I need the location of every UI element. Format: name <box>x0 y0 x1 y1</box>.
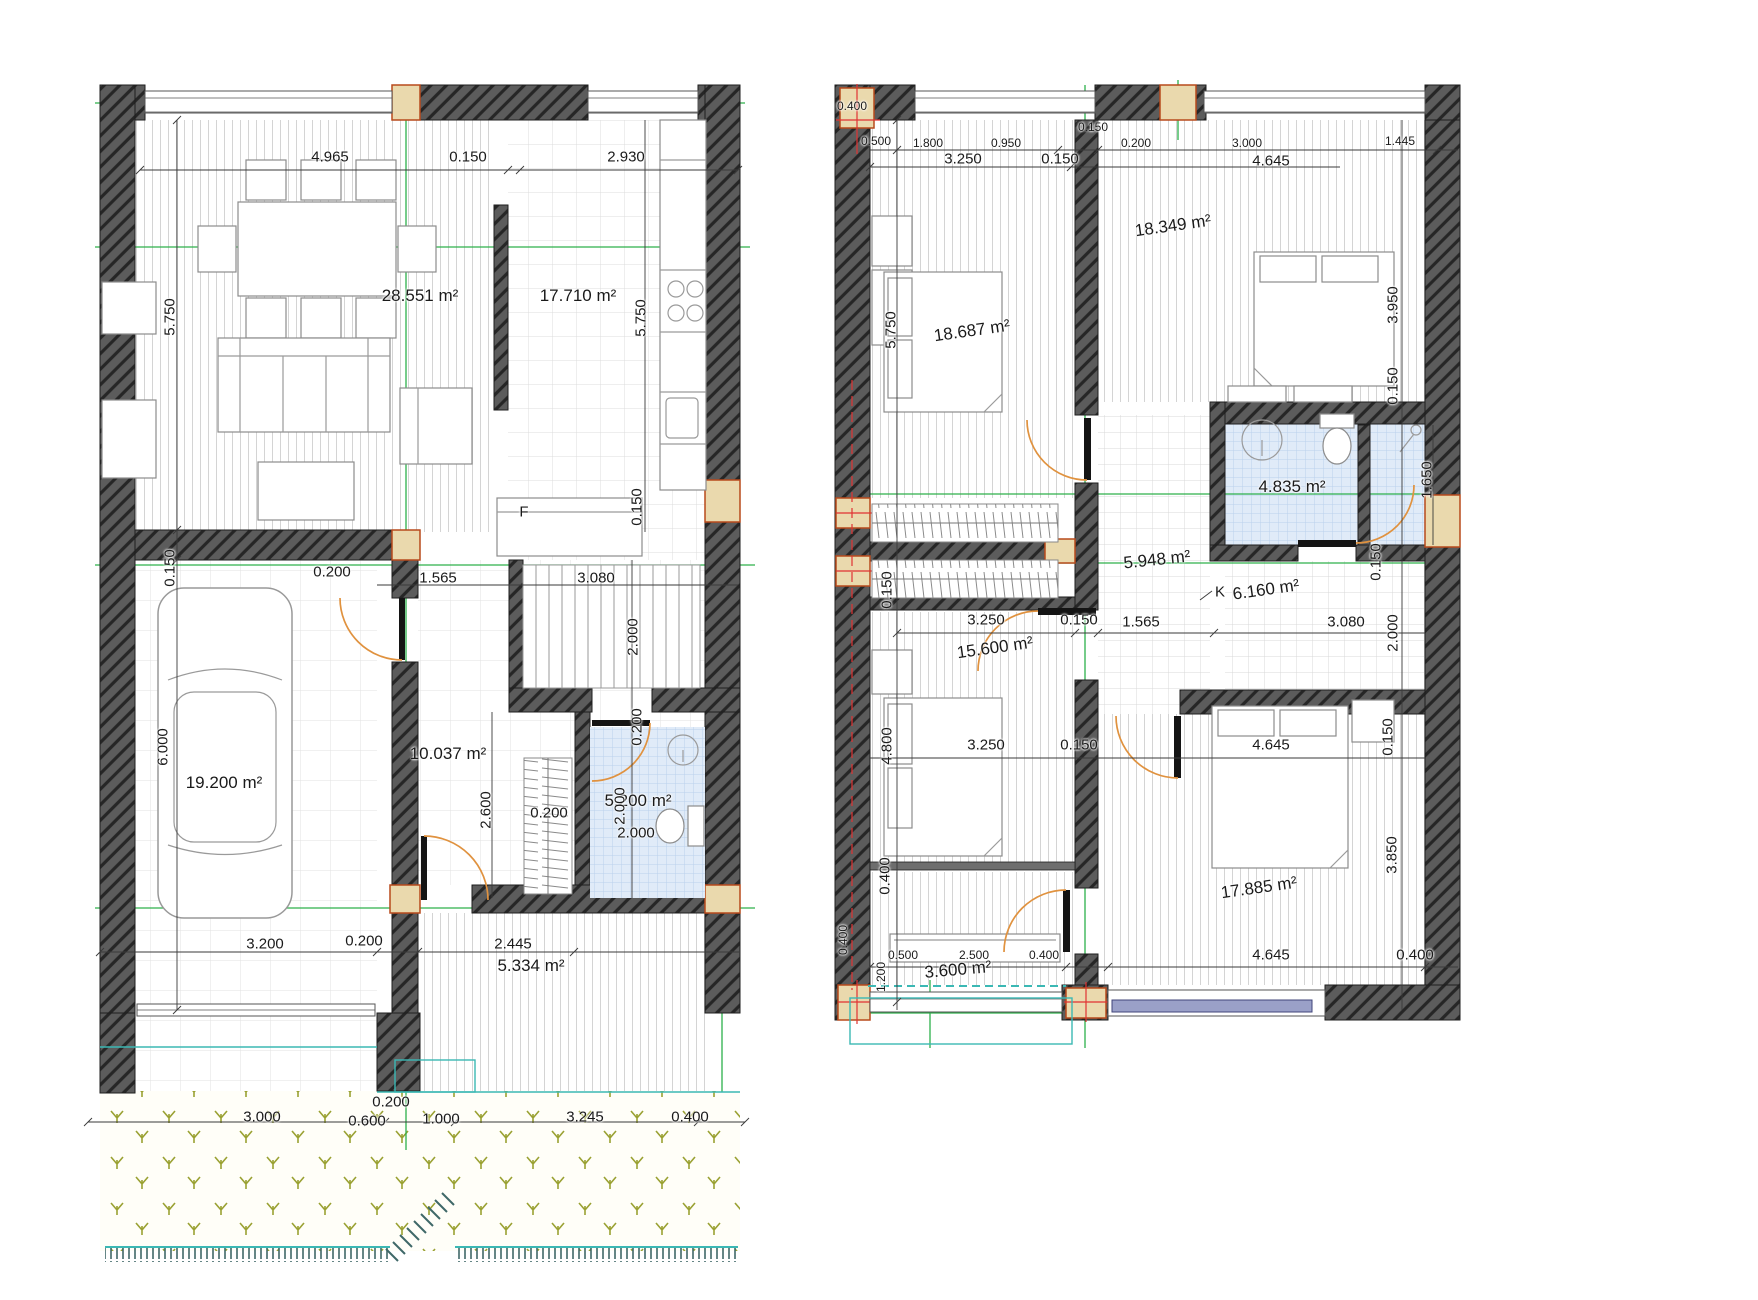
staircase <box>523 565 700 688</box>
toilet-icon <box>1320 414 1354 428</box>
sofa <box>218 338 390 432</box>
kitchen-counter <box>660 120 706 490</box>
fence-hatch <box>105 1248 390 1262</box>
dining-table <box>238 202 396 296</box>
ground-floor-plan <box>84 85 755 1262</box>
sliding-door <box>1112 1000 1312 1012</box>
car <box>158 588 292 918</box>
toilet-icon <box>688 806 704 846</box>
fence-hatch <box>455 1248 738 1262</box>
ground-floor-bathroom <box>590 727 705 898</box>
counter <box>890 934 1060 962</box>
armchair <box>400 388 472 464</box>
hall-closet <box>524 758 572 894</box>
fridge-counter <box>497 498 642 556</box>
floor-plan-canvas: 4.9650.1502.93028.551 m²17.710 m²5.7505.… <box>0 0 1758 1300</box>
floor-plan-drawing <box>0 0 1758 1300</box>
upper-floor-plan <box>835 80 1460 1048</box>
coffee-table <box>258 462 354 520</box>
